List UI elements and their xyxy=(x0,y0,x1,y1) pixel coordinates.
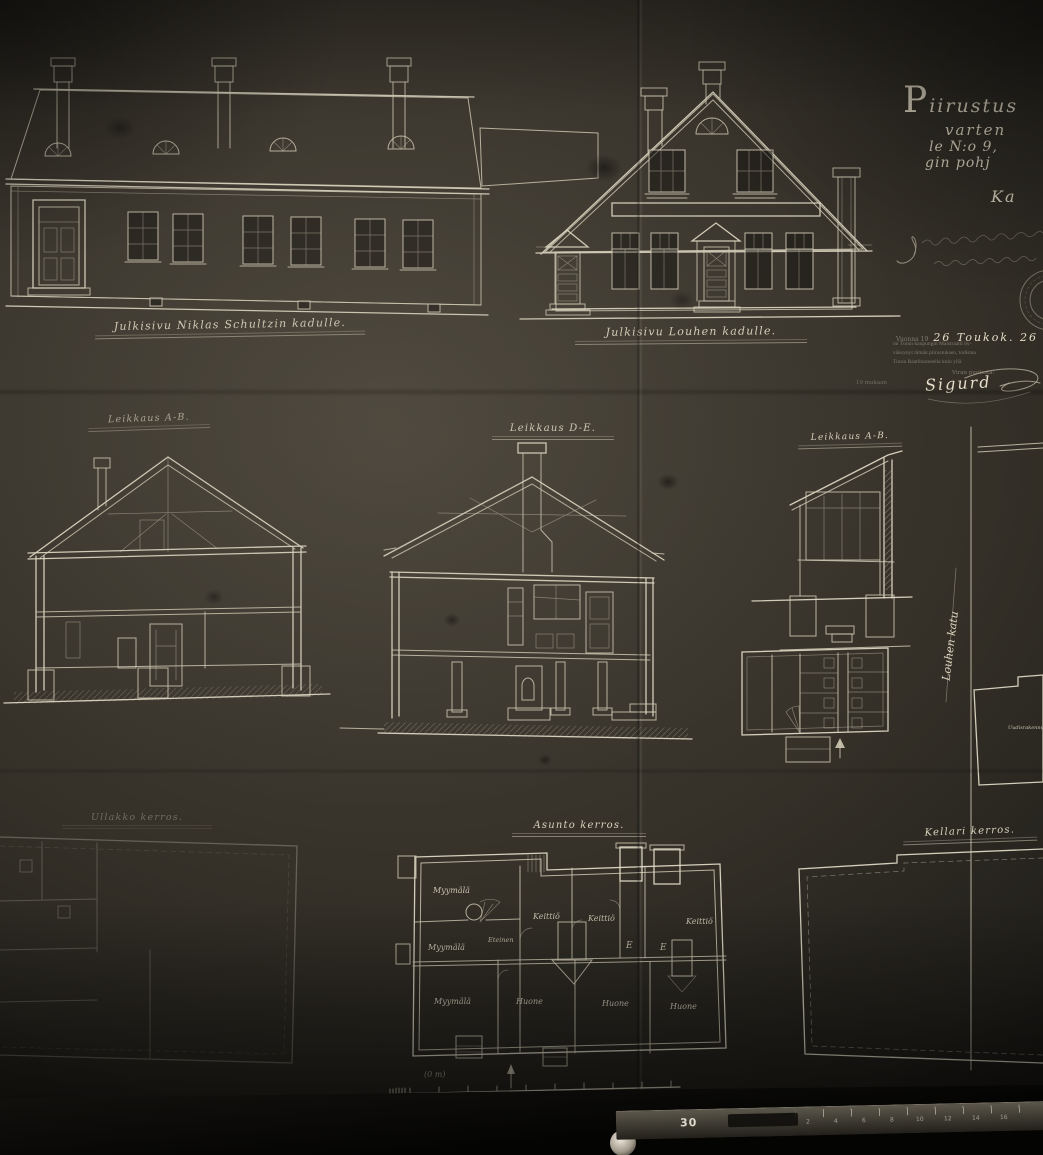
plan-center-label: Asunto kerros. xyxy=(512,820,646,837)
elevation-center-label: Julkisivu Louhen kadulle. xyxy=(575,324,807,345)
center-porch xyxy=(692,223,740,312)
section-right-label: Leikkaus A-B. xyxy=(798,431,902,450)
plan-center-drawing: Myymälä Myymälä Eteinen Keittiö Keittiö … xyxy=(396,843,726,1088)
plan-right-drawing xyxy=(799,849,1043,1063)
plan-left-drawing xyxy=(0,837,297,1063)
room-label: Eteinen xyxy=(487,936,514,944)
ruler-tick-number: 6 xyxy=(862,1117,866,1124)
ruler-tick-number: 8 xyxy=(890,1117,894,1124)
ruler-tick-number: 14 xyxy=(972,1115,980,1122)
scale-note: (0 m) xyxy=(424,1070,445,1079)
approval-seal xyxy=(1020,270,1043,330)
room-label: E xyxy=(625,941,633,951)
clerk-line: Turun Raatihuoneella kuin yllä xyxy=(893,358,976,367)
title-line: varten xyxy=(945,121,1043,139)
clerk-text: on Turun kaupungin Maistraatti hy- väksy… xyxy=(893,340,976,367)
chimney-shafts xyxy=(616,843,684,884)
ruler-tick-number: 12 xyxy=(944,1115,952,1122)
new-building-label: Uudisrakennus xyxy=(1008,725,1043,731)
title-line: gin pohj xyxy=(925,155,1043,171)
room-label: Huone xyxy=(669,1002,697,1011)
title-line: Piirustus xyxy=(903,80,1043,121)
outbuilding-plan-drawing xyxy=(742,648,888,762)
room-label: Keittiö xyxy=(532,912,560,921)
ruler-tick-number: 10 xyxy=(916,1116,924,1123)
fanlight-window xyxy=(696,118,728,134)
section-center-label: Leikkaus D-E. xyxy=(492,423,614,440)
site-plan-drawing: Louhen katu Uudisrakennus xyxy=(939,427,1043,1070)
room-label: Myymälä xyxy=(427,943,465,952)
paper-fold-horizontal xyxy=(0,388,1043,396)
room-label: Myymälä xyxy=(433,997,471,1006)
signboard-band xyxy=(612,203,820,216)
elevation-center-drawing xyxy=(520,62,900,319)
margin-note: 19 mukaan xyxy=(856,380,887,386)
title-line: le N:o 9, xyxy=(929,139,1043,155)
ruler-tick-number: 2 xyxy=(806,1118,810,1125)
room-label: Keittiö xyxy=(685,917,713,926)
paper-fold-horizontal-2 xyxy=(0,768,1043,774)
drawing-layer: Louhen katu Uudisrakennus xyxy=(0,0,1043,1155)
ruler-slot xyxy=(728,1113,798,1128)
section-right-drawing xyxy=(752,451,912,650)
clerk-line: on Turun kaupungin Maistraatti hy- xyxy=(893,340,976,349)
section-left-drawing xyxy=(4,457,330,704)
room-label: E xyxy=(659,943,667,953)
room-label: Huone xyxy=(515,997,543,1006)
ruler-tick-number: 16 xyxy=(1000,1114,1008,1121)
room-label: Myymälä xyxy=(432,886,470,895)
clerk-line: väksynyt tämän piirustuksen, todistaa xyxy=(893,349,976,358)
ruler-tick-number: 4 xyxy=(834,1118,838,1125)
room-label: Keittiö xyxy=(587,914,615,923)
plan-left-label: Ullakko kerros. xyxy=(62,812,212,829)
chimney xyxy=(641,88,667,152)
chimney xyxy=(699,62,725,104)
paper-fold-vertical xyxy=(636,0,643,1092)
north-arrow xyxy=(835,738,845,748)
room-label: Huone xyxy=(601,999,629,1008)
title-line: Ka xyxy=(991,187,1043,206)
entrance-door xyxy=(28,200,90,295)
handwritten-note-squiggle xyxy=(897,232,1043,266)
north-arrow xyxy=(507,1064,515,1074)
elevation-left-drawing xyxy=(6,58,598,315)
title-block: Piirustus varten le N:o 9, gin pohj Ka xyxy=(903,80,1043,206)
ruler-number: 30 xyxy=(680,1116,698,1129)
gate-roof-drawing xyxy=(480,128,598,186)
basement-posts xyxy=(447,662,612,717)
blueprint-photo: Louhen katu Uudisrakennus xyxy=(0,0,1043,1155)
